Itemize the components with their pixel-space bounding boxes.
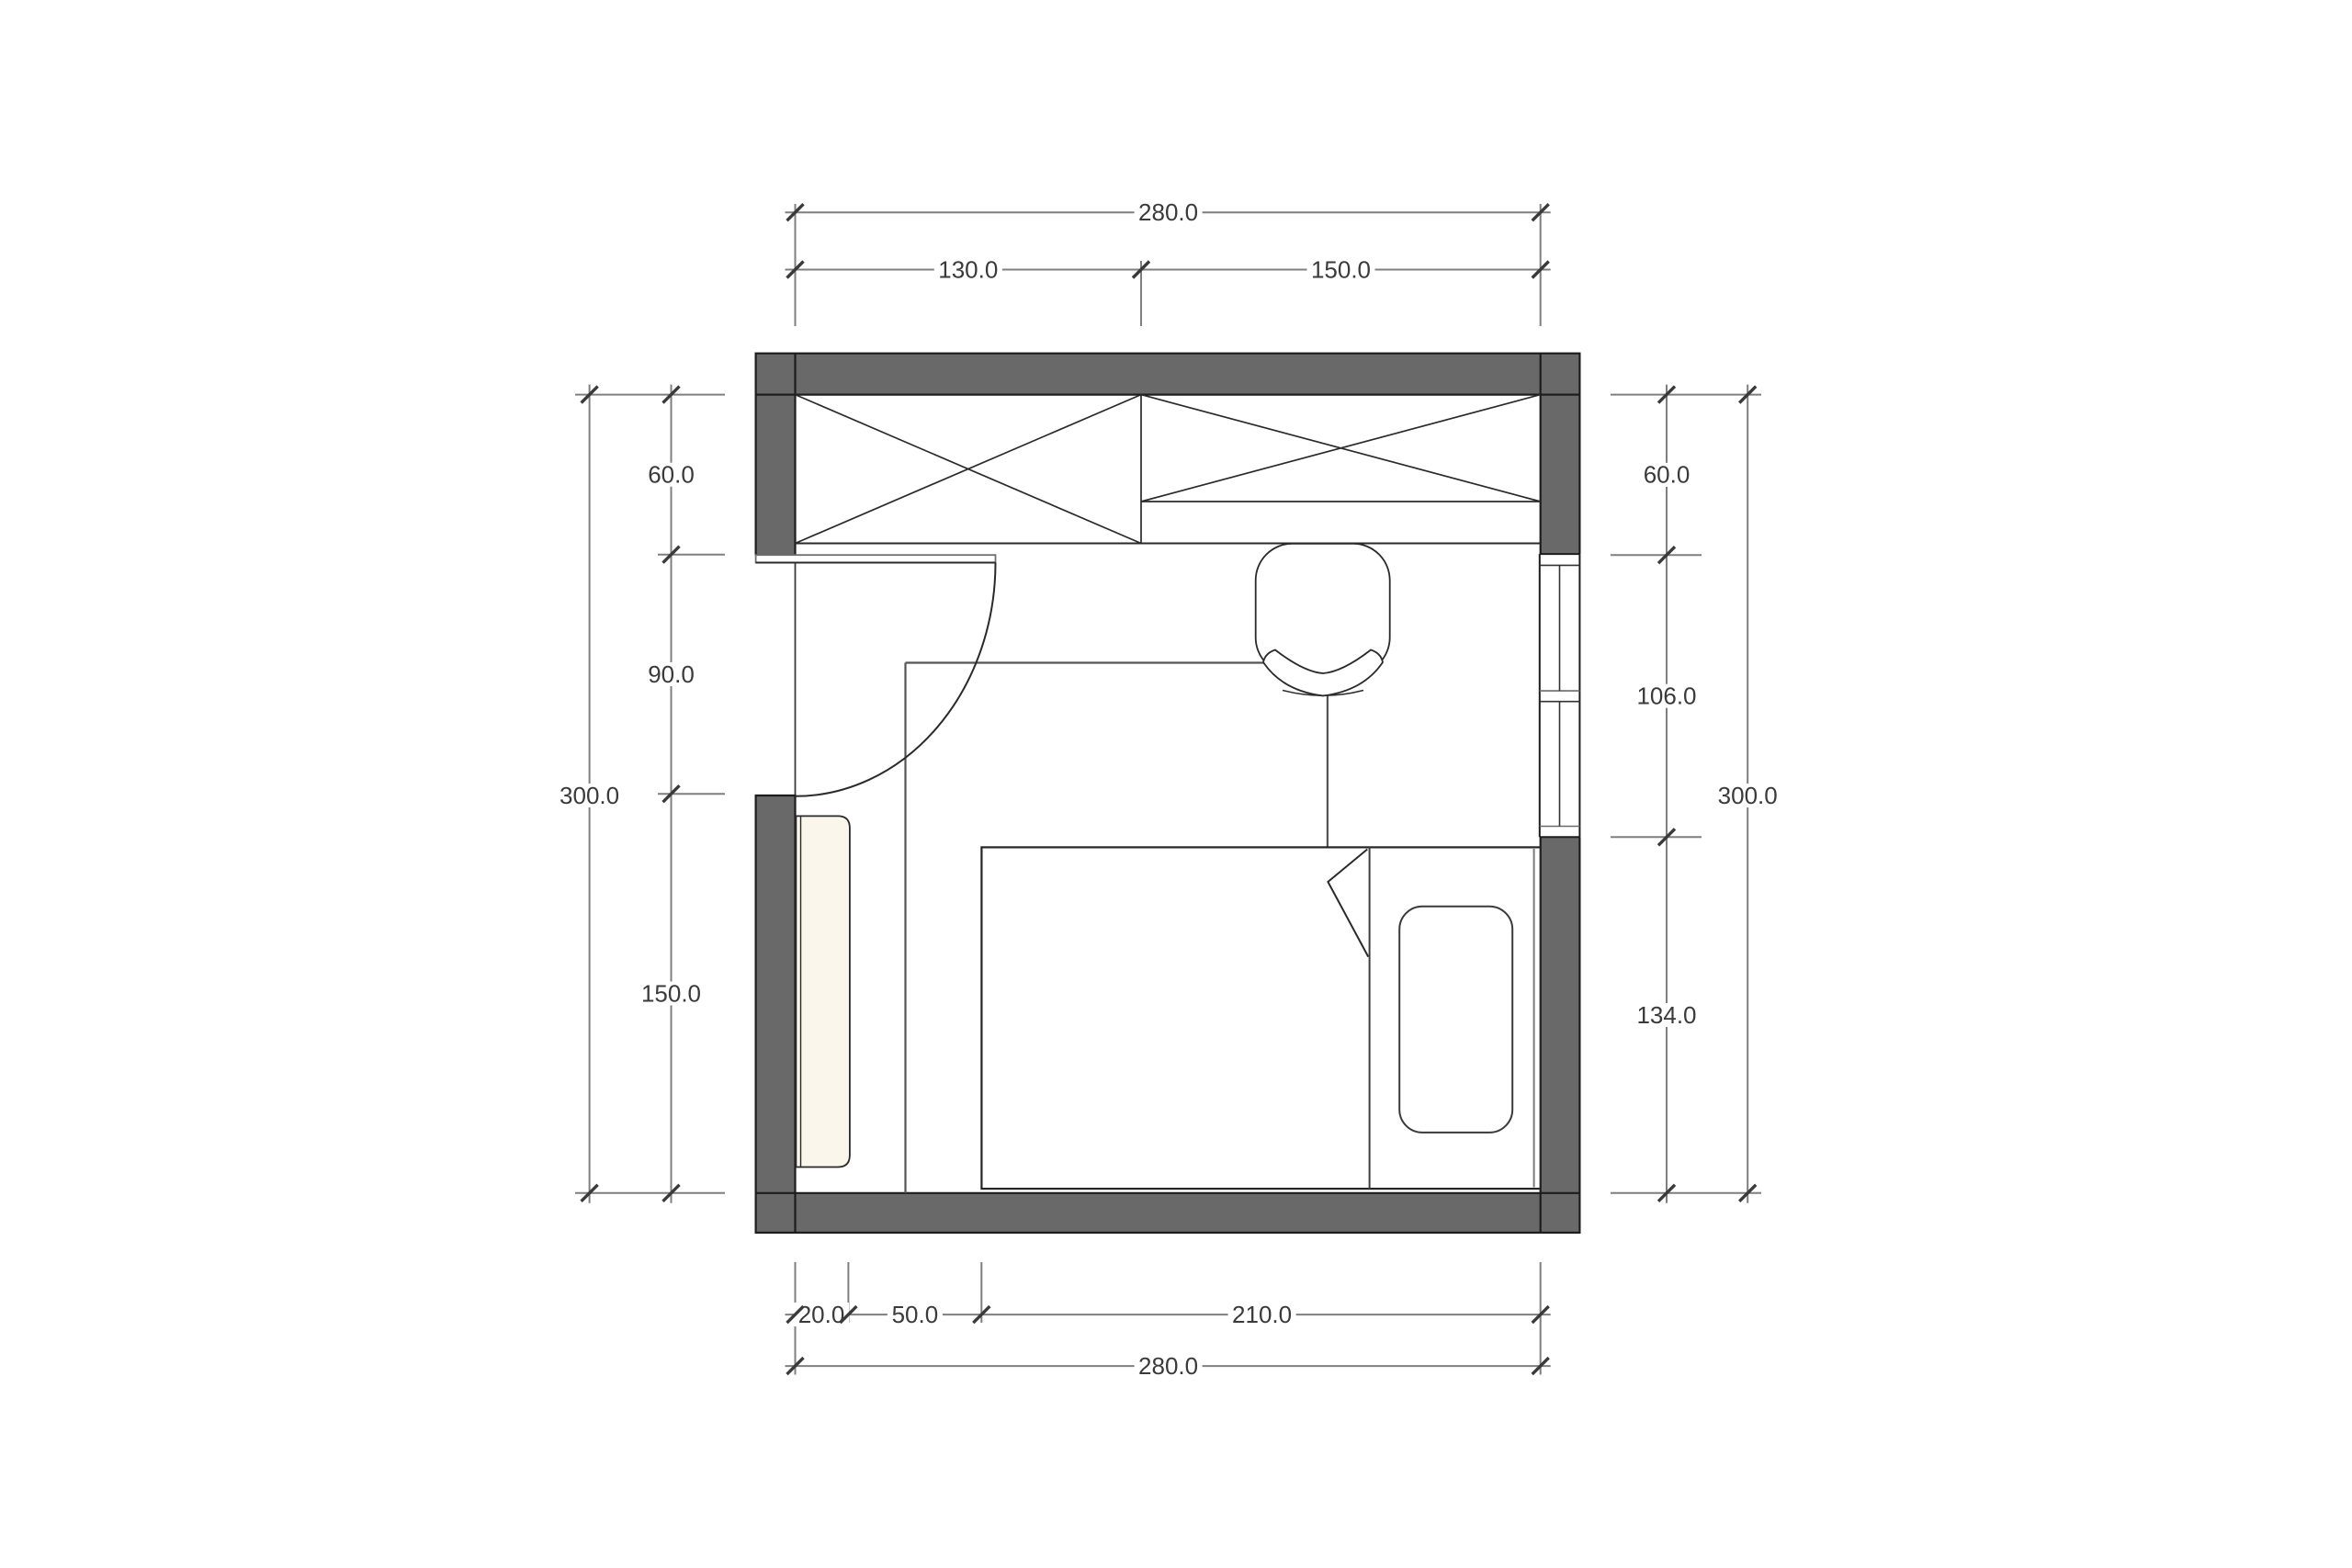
svg-text:90.0: 90.0 xyxy=(648,660,695,688)
svg-text:20.0: 20.0 xyxy=(798,1301,845,1328)
svg-text:280.0: 280.0 xyxy=(1138,198,1198,226)
svg-text:134.0: 134.0 xyxy=(1636,1001,1696,1029)
svg-text:300.0: 300.0 xyxy=(1718,782,1778,809)
svg-text:210.0: 210.0 xyxy=(1232,1301,1292,1328)
svg-text:280.0: 280.0 xyxy=(1138,1352,1198,1380)
svg-text:60.0: 60.0 xyxy=(648,461,695,489)
svg-text:150.0: 150.0 xyxy=(641,979,701,1007)
svg-text:106.0: 106.0 xyxy=(1636,682,1696,710)
svg-text:150.0: 150.0 xyxy=(1311,255,1371,283)
svg-text:50.0: 50.0 xyxy=(892,1301,939,1328)
svg-text:130.0: 130.0 xyxy=(938,255,998,283)
svg-text:60.0: 60.0 xyxy=(1644,461,1690,489)
svg-text:300.0: 300.0 xyxy=(560,782,619,809)
